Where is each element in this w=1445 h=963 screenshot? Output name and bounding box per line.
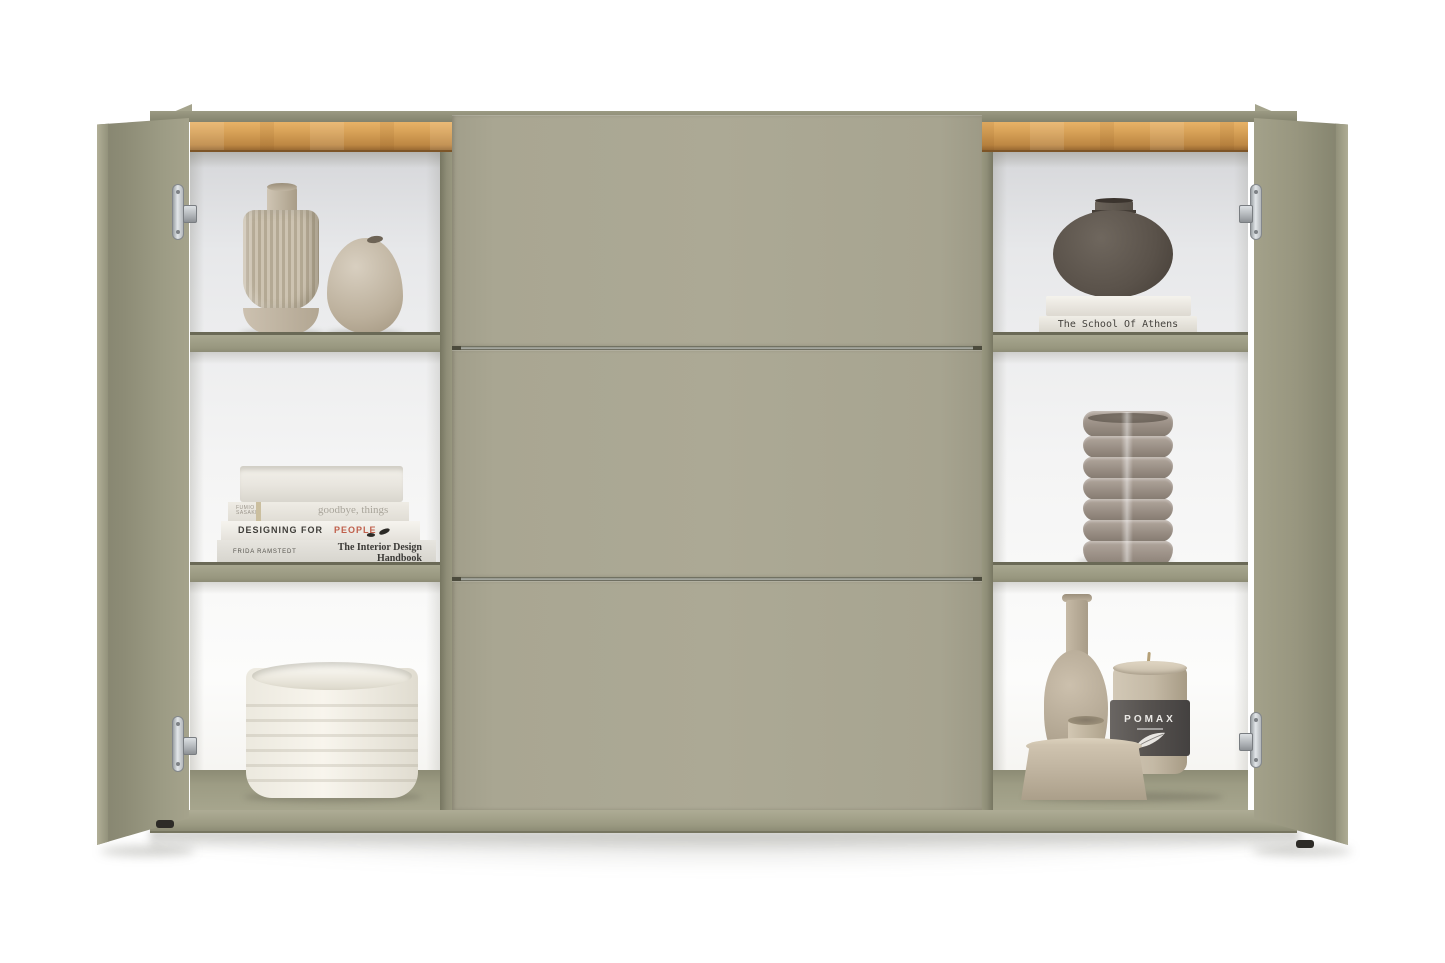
right-door-bottom-hinge-block xyxy=(1239,733,1253,751)
right-door-edge xyxy=(1335,118,1348,845)
right-shelf2-edge xyxy=(993,565,1248,582)
cabinet-base-front xyxy=(150,810,1297,833)
left-shelf2-shadow xyxy=(190,582,440,594)
left-door-foot xyxy=(156,820,174,828)
ribbed-vase xyxy=(243,210,319,310)
book-goodbye-things: FUMIO SASAKI goodbye, things xyxy=(228,502,409,521)
book-goodbye-bookmark-band xyxy=(256,502,261,521)
book-designing-title-black: DESIGNING FOR xyxy=(238,525,323,535)
book-plain-right xyxy=(1046,296,1191,316)
book-goodbye-author: FUMIO SASAKI xyxy=(236,506,257,516)
right-door-open xyxy=(1254,118,1348,845)
left-door-shadow xyxy=(100,846,195,856)
product-photo-sideboard: FUMIO SASAKI goodbye, things DESIGNING F… xyxy=(0,0,1445,963)
left-shelf1-edge xyxy=(190,335,440,352)
right-door-top-hinge-block xyxy=(1239,205,1253,223)
book-plain-top xyxy=(240,466,403,502)
book-designing-for-people: DESIGNING FOR PEOPLE xyxy=(221,521,420,540)
center-flap-top xyxy=(452,115,982,346)
cabinet-soft-shadow xyxy=(118,836,1330,872)
candle-holder-base xyxy=(1021,744,1147,800)
left-shelf1-shadow xyxy=(190,352,440,364)
book-goodbye-title: goodbye, things xyxy=(318,504,388,516)
white-bowl-rim xyxy=(252,662,412,690)
right-shelf2-shadow xyxy=(993,582,1248,594)
right-compartment: The School Of Athens POMAX xyxy=(993,152,1248,812)
center-flap-middle xyxy=(452,350,982,577)
book-athens-title: The School Of Athens xyxy=(1039,319,1197,330)
right-shelf1-edge xyxy=(993,335,1248,352)
bowl-stack-highlight xyxy=(1121,412,1133,562)
candle-top xyxy=(1113,661,1187,675)
left-shelf2-edge xyxy=(190,565,440,582)
center-flap-bottom xyxy=(452,581,982,810)
bird-silhouette xyxy=(379,528,391,536)
right-door-foot xyxy=(1296,840,1314,848)
right-divider-panel xyxy=(982,152,993,810)
right-shelf1-shadow xyxy=(993,352,1248,364)
left-door-top-hinge-block xyxy=(183,205,197,223)
candle-brand-text: POMAX xyxy=(1110,714,1190,725)
left-door-edge xyxy=(97,118,109,845)
book-handbook-author: FRIDA RAMSTEDT xyxy=(233,549,297,555)
left-divider-panel xyxy=(440,152,452,810)
bird-silhouette xyxy=(367,532,376,537)
left-compartment: FUMIO SASAKI goodbye, things DESIGNING F… xyxy=(190,152,440,812)
book-handbook-title: The Interior Design Handbook xyxy=(338,542,422,564)
taupe-bowl-stack xyxy=(1083,412,1173,566)
dark-round-vase xyxy=(1053,210,1173,298)
left-door-bottom-hinge-block xyxy=(183,737,197,755)
white-bowl-ribs xyxy=(246,692,418,790)
